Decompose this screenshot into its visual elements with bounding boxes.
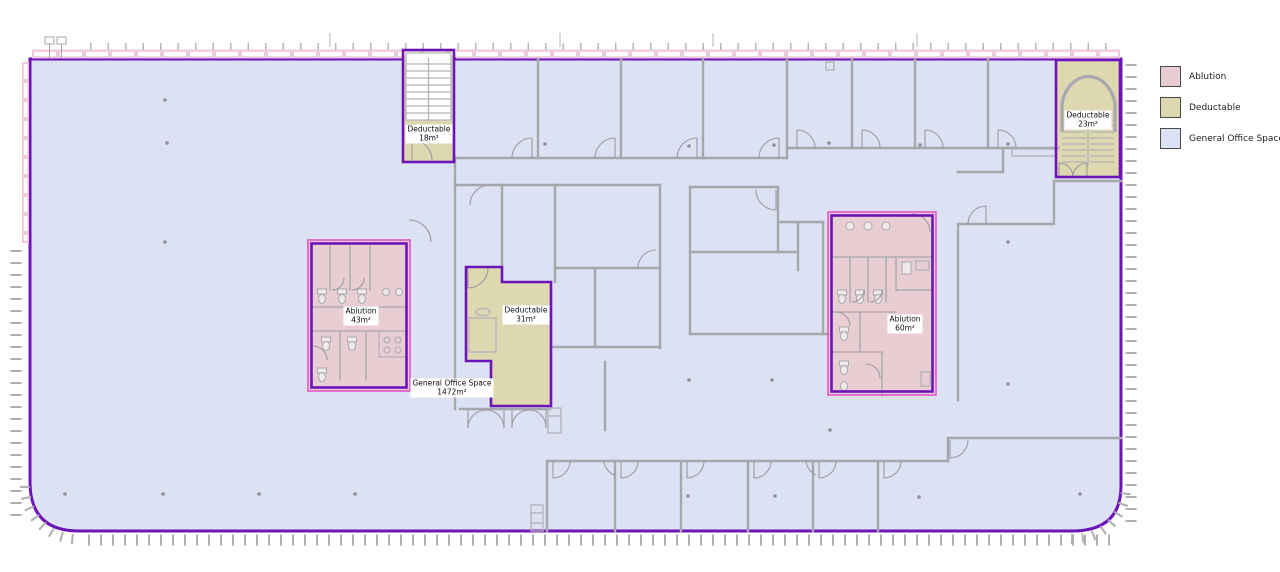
floor-plan-svg xyxy=(0,0,1280,572)
legend-swatch-general-office-space xyxy=(1160,128,1181,149)
legend-item-deductable: Deductable xyxy=(1160,97,1280,118)
zone-label-general-office-space: General Office Space 1472m² xyxy=(410,379,493,398)
zone-area: 31m² xyxy=(516,314,536,323)
zone-area: 43m² xyxy=(351,315,371,324)
zone-area: 1472m² xyxy=(437,387,466,396)
legend-swatch-deductable xyxy=(1160,97,1181,118)
zone-label-deductable-18: Deductable 18m² xyxy=(405,125,452,144)
legend-label: General Office Space xyxy=(1189,134,1280,144)
zone-label-deductable-23: Deductable 23m² xyxy=(1064,111,1111,130)
legend-swatch-ablution xyxy=(1160,66,1181,87)
legend-label: Ablution xyxy=(1189,72,1226,82)
legend-label: Deductable xyxy=(1189,103,1241,113)
legend-item-ablution: Ablution xyxy=(1160,66,1280,87)
zone-area: 18m² xyxy=(419,133,439,142)
zone-area: 60m² xyxy=(895,323,915,332)
zone-label-ablution-60: Ablution 60m² xyxy=(887,315,922,334)
floor-plan-page: Deductable 18m² Deductable 23m² Ablution… xyxy=(0,0,1280,572)
legend-item-general-office-space: General Office Space xyxy=(1160,128,1280,149)
legend: Ablution Deductable General Office Space xyxy=(1160,66,1280,159)
zone-area: 23m² xyxy=(1078,119,1098,128)
zone-label-ablution-43: Ablution 43m² xyxy=(343,307,378,326)
zone-label-deductable-31: Deductable 31m² xyxy=(502,306,549,325)
